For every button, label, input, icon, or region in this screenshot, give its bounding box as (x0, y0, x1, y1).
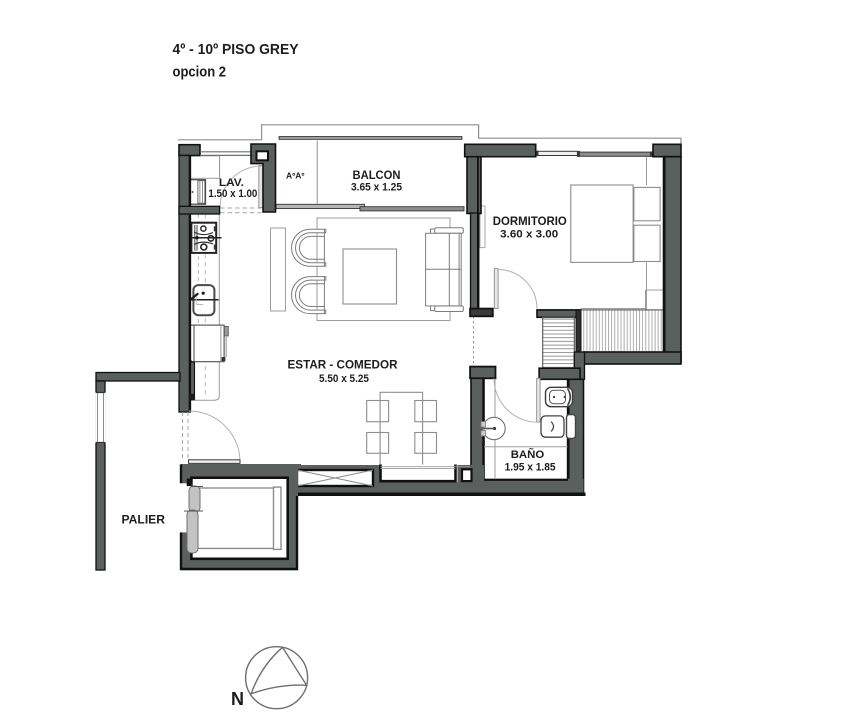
svg-text:BAÑO: BAÑO (511, 448, 545, 461)
svg-text:N: N (231, 689, 244, 709)
svg-text:AºAº: AºAº (286, 172, 305, 181)
svg-text:3.65 x 1.25: 3.65 x 1.25 (351, 182, 402, 194)
svg-text:ESTAR - COMEDOR: ESTAR - COMEDOR (288, 360, 399, 372)
svg-text:BALCON: BALCON (353, 170, 401, 182)
svg-text:3.60 x 3.00: 3.60 x 3.00 (500, 228, 558, 240)
svg-text:4º - 10º PISO GREY: 4º - 10º PISO GREY (173, 41, 299, 58)
svg-text:1.50 x 1.00: 1.50 x 1.00 (208, 188, 257, 200)
svg-text:DORMITORIO: DORMITORIO (493, 216, 567, 228)
svg-text:PALIER: PALIER (122, 513, 166, 527)
svg-text:5.50 x 5.25: 5.50 x 5.25 (319, 373, 369, 385)
svg-text:opcion 2: opcion 2 (173, 64, 227, 81)
svg-text:1.95 x 1.85: 1.95 x 1.85 (505, 462, 556, 474)
